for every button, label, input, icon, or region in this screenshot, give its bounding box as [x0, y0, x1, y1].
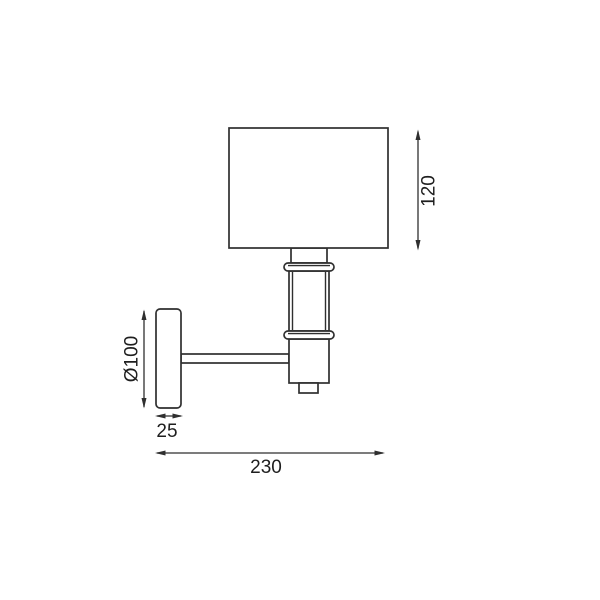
- arrowhead-right-icon: [375, 451, 386, 456]
- dimension-backplate-depth: 25: [155, 414, 183, 443]
- dimension-label: 230: [250, 457, 282, 478]
- lamp-shade: [229, 128, 388, 248]
- lamp-drawing: [156, 128, 388, 408]
- drawing-canvas: 120 Ø100 25 230: [0, 0, 600, 600]
- arrowhead-down-icon: [142, 398, 147, 409]
- arrowhead-up-icon: [142, 310, 147, 321]
- switch-knob: [299, 383, 318, 393]
- dimension-label: 25: [156, 421, 177, 442]
- dimension-shade-height: 120: [416, 130, 440, 251]
- upper-collar: [284, 263, 334, 271]
- wall-lamp-technical-drawing: 120 Ø100 25 230: [0, 0, 600, 600]
- lamp-body: [289, 339, 329, 383]
- arrowhead-up-icon: [416, 130, 421, 141]
- dimension-label: Ø100: [122, 336, 143, 382]
- arrowhead-down-icon: [416, 240, 421, 251]
- arrowhead-left-icon: [155, 451, 166, 456]
- lower-collar: [284, 331, 334, 339]
- dimension-total-projection: 230: [155, 451, 385, 479]
- arrowhead-left-icon: [155, 414, 166, 419]
- shade-neck: [291, 248, 327, 263]
- arrowhead-right-icon: [173, 414, 184, 419]
- mounting-arm: [181, 354, 289, 363]
- dimension-backplate-diameter: Ø100: [122, 310, 147, 409]
- dimension-label: 120: [419, 175, 440, 207]
- stem-tube: [289, 271, 329, 331]
- wall-plate: [156, 309, 181, 408]
